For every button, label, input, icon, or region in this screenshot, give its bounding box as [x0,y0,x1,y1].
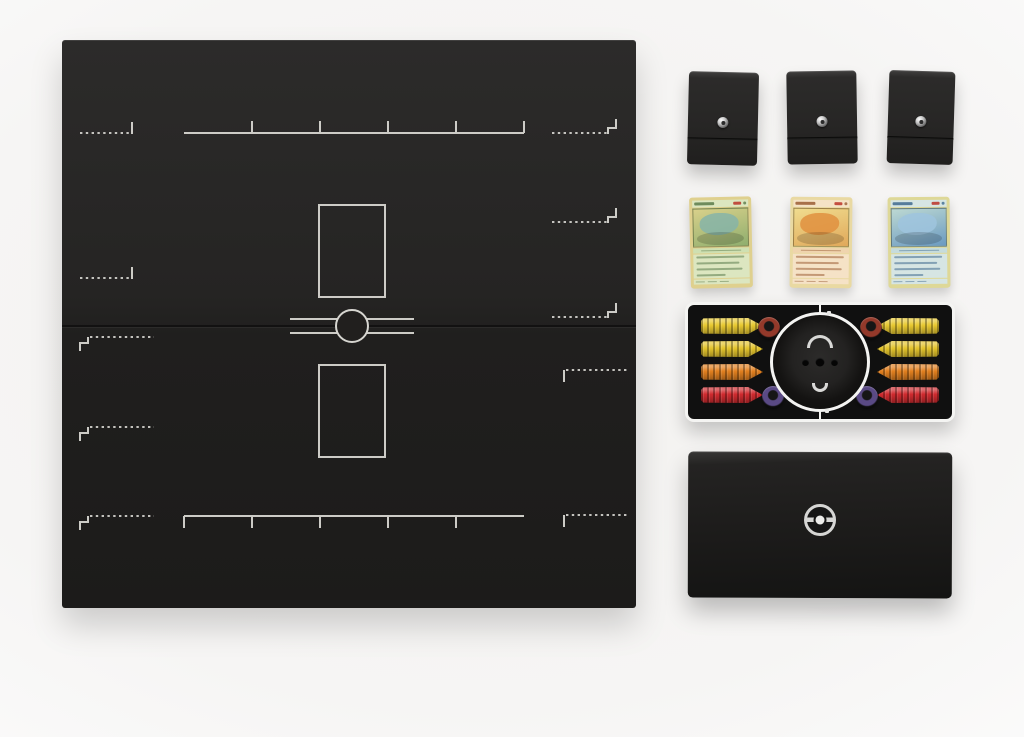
card-text-lines [891,254,947,279]
top-left-slot-markers [80,122,132,279]
metal-pokeball-pin-icon [915,116,926,127]
card-artwork [891,208,947,248]
pokemon-card-green [689,196,753,288]
deck-box-lid-seam [688,137,758,141]
damage-counter-stack [701,341,763,357]
metal-pokeball-pin-icon [816,116,827,127]
silver-pokeball-emblem-icon [804,504,836,536]
deck-box-lid-seam [787,136,857,139]
card-header [793,200,849,208]
card-stage-bar [891,248,947,254]
tray-print-mark [825,409,829,413]
active-spot-bottom [319,365,385,457]
damage-counter-stack [701,318,763,334]
damage-counter-stack [877,318,939,334]
pokemon-card-blue [888,197,951,289]
card-header [891,200,947,208]
card-text-lines [693,253,749,278]
damage-counter-stack [877,341,939,357]
compartment-top-arc [807,335,833,348]
active-spot-top [319,205,385,297]
damage-counter-stack [877,387,939,403]
deck-box-3 [887,70,956,165]
compartment-left-hole [802,359,809,366]
bottom-right-slot-markers [564,370,627,527]
card-artwork [692,207,749,247]
deck-box-lid-seam [887,136,953,140]
tray-print-mark [827,311,831,315]
game-board [62,40,636,608]
deck-box-1 [687,71,759,166]
board-markings [62,40,636,608]
bottom-left-slot-markers [80,337,154,530]
compartment-bottom-arc [812,383,828,392]
damage-counter-stack [877,364,939,380]
card-footer [793,279,849,285]
top-right-slot-markers [552,119,616,318]
deck-box-2 [786,70,857,164]
accessory-tray [685,302,955,422]
card-text-lines [793,254,849,279]
compartment-center-hole [816,358,825,367]
card-header [692,199,748,207]
card-stage-bar [793,248,849,254]
storage-box [688,452,953,599]
pokemon-card-orange [790,197,853,289]
pokeball-compartment [770,312,870,412]
compartment-right-hole [831,359,838,366]
bottom-bench-line [184,516,524,528]
product-photo [0,0,1024,737]
damage-counter-stack [701,364,763,380]
condition-marker-die [860,317,882,339]
card-artwork [793,208,849,248]
card-footer [694,278,750,284]
damage-counter-stack [701,387,763,403]
top-bench-line [184,121,524,133]
metal-pokeball-pin-icon [717,117,728,128]
card-footer [891,279,947,285]
